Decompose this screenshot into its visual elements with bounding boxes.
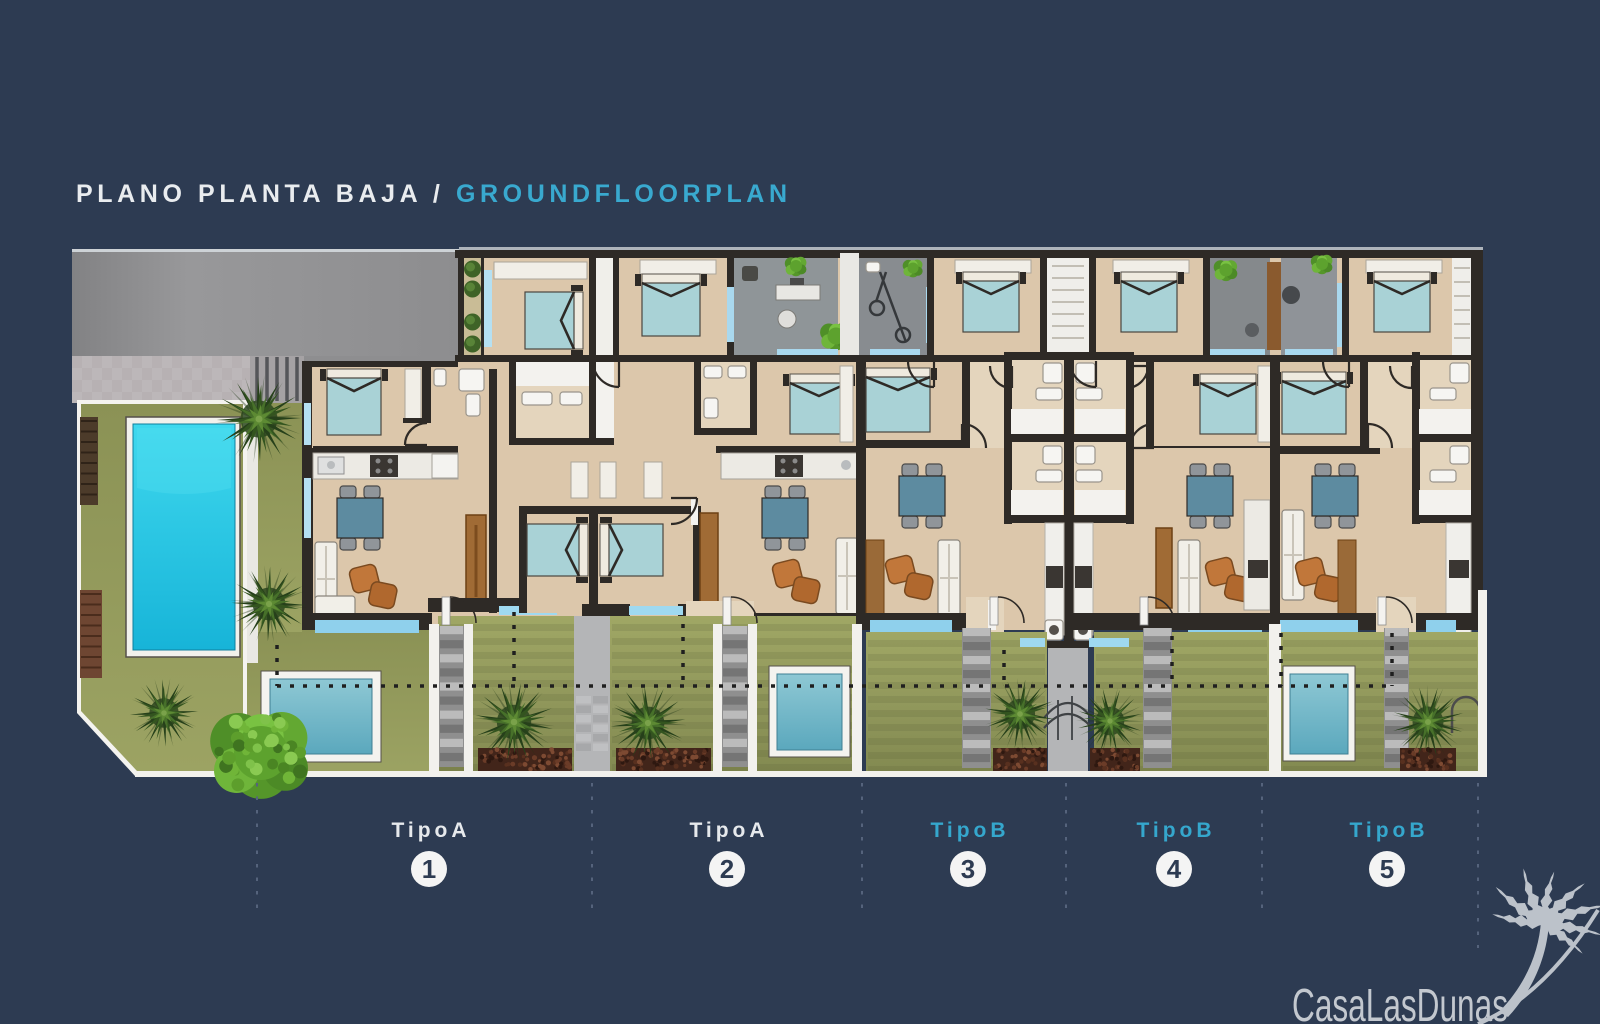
svg-text:PLANO PLANTA BAJA / GROUNDFLO: PLANO PLANTA BAJA / GROUNDFLOORPLAN — [76, 180, 792, 208]
svg-text:3: 3 — [961, 854, 975, 884]
svg-text:TipoA: TipoA — [391, 819, 470, 842]
svg-text:TipoA: TipoA — [689, 819, 768, 842]
svg-text:2: 2 — [720, 854, 734, 884]
svg-text:TipoB: TipoB — [930, 819, 1009, 842]
svg-text:5: 5 — [1380, 854, 1394, 884]
svg-text:4: 4 — [1167, 854, 1182, 884]
svg-text:1: 1 — [422, 854, 436, 884]
svg-text:CasaLasDunas: CasaLasDunas — [1292, 979, 1508, 1024]
svg-text:TipoB: TipoB — [1136, 819, 1215, 842]
svg-text:TipoB: TipoB — [1349, 819, 1428, 842]
